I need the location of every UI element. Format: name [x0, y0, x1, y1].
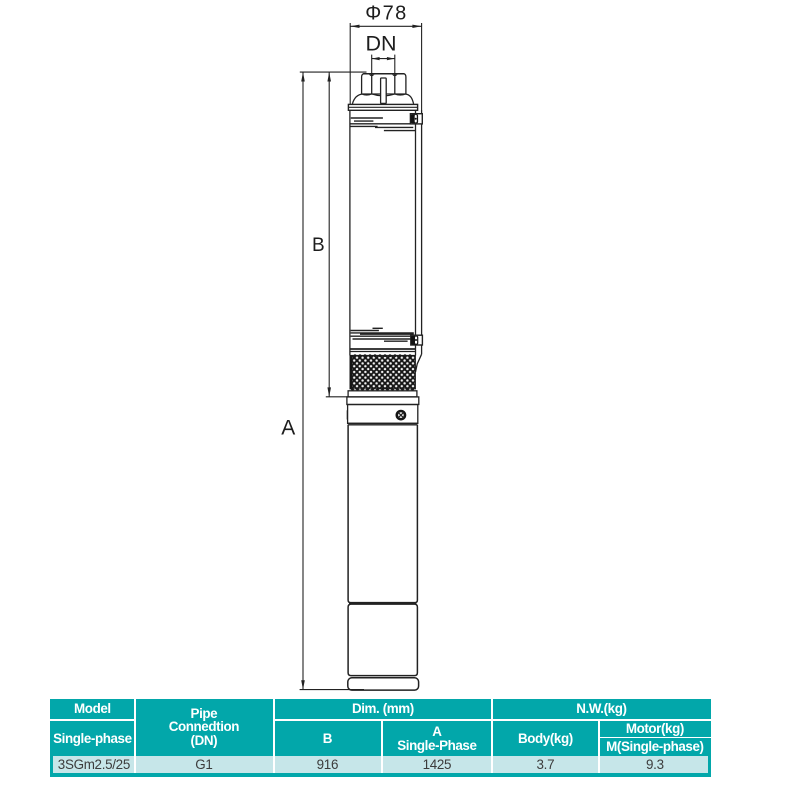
- svg-text:A: A: [281, 417, 295, 440]
- svg-text:B: B: [312, 235, 325, 256]
- svg-text:DN: DN: [365, 32, 396, 56]
- svg-text:Φ78: Φ78: [365, 3, 407, 25]
